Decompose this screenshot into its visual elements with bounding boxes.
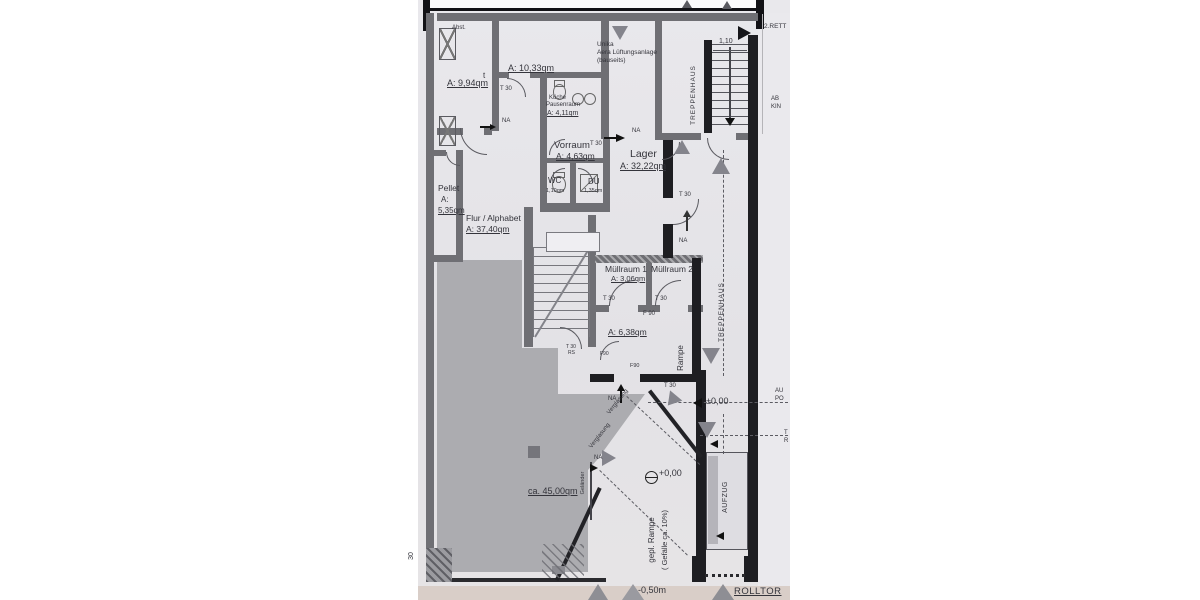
room-label-muellraum1: Müllraum 1 (605, 265, 647, 274)
room-label-vorraum: Vorraum (554, 141, 590, 151)
wall-vestibule-bottom-a (590, 374, 614, 382)
entrance-arrow (588, 584, 608, 600)
edge-text-po: PO (775, 396, 784, 402)
wall-stairflight-west (704, 40, 712, 133)
door-tag-t30: T 30 (655, 296, 667, 302)
radiator (546, 232, 600, 252)
door-tag-na: NA (594, 455, 602, 461)
wall-segment (595, 305, 609, 312)
area-label-flur: A: 37,40qm (466, 225, 509, 234)
area-label-pellet: 5,35qm (438, 207, 465, 215)
area-label-463: A: 4,63qm (556, 152, 595, 161)
entrance-arrow (712, 584, 734, 600)
room-label-du: DU (588, 178, 600, 186)
wall-vestibule-bottom-b (640, 374, 702, 382)
rolltor-track (705, 574, 745, 577)
door-tag-t30: T 30 (679, 192, 691, 198)
rolltor-post-right (744, 556, 757, 582)
door-tag-na: NA (679, 238, 687, 244)
room-label-lager: Lager (630, 149, 657, 160)
treppenhaus-label-top: TREPPENHAUS (689, 45, 699, 145)
floorplan-scan: Abst. t A: 9,94qm A: 10,33qm Küche Pause… (0, 0, 1200, 600)
gelaender-label: Geländer (580, 458, 588, 508)
room-label-wc: WC (548, 177, 561, 185)
level-marker-circle (645, 471, 658, 484)
wall-stair-west (524, 207, 533, 347)
room-label-kueche: Küche (549, 95, 566, 101)
door-tag-t30: T 30 (664, 383, 676, 389)
note-unika-1: Unika (597, 42, 614, 49)
north-tick (722, 1, 732, 9)
staircase-top-centerline (729, 47, 731, 121)
level-marker-flag (693, 398, 702, 408)
wall-pellet-bottom (434, 255, 463, 262)
window-shaft-symbol (439, 28, 456, 60)
na-arrow-stem (480, 126, 490, 128)
escape-arrow (712, 158, 730, 174)
wall-muellraum-top-hatched (595, 255, 703, 263)
edge-text-t: T (784, 430, 788, 436)
wall-pellet-right (456, 150, 463, 258)
escape-arrow (674, 140, 690, 154)
na-arrow-head (490, 124, 496, 130)
door-tag-f90: F 90 (643, 311, 655, 317)
gefaelle-label: ( Gefälle ca. 10%) (660, 490, 670, 590)
na-arrow-head (590, 464, 598, 472)
na-arrow-stem (686, 217, 688, 231)
wall-corridor-west (692, 258, 701, 382)
note-unika-3: (bauseits) (597, 58, 626, 65)
door-tag-na: NA (502, 118, 510, 124)
door-tag-t30: T 30 (500, 86, 512, 92)
door-tag-na: NA (632, 128, 640, 134)
area-label-1033: A: 10,33qm (508, 64, 554, 73)
wall-front-bottom (426, 578, 606, 582)
wall-east-long (748, 35, 758, 582)
edge-text-kin: KIN (771, 104, 781, 110)
room-label-muellraum2: Müllraum 2 (651, 265, 693, 274)
na-arrow-stem (604, 137, 616, 139)
wall-room-divider (492, 21, 499, 131)
dim-label-30: 30 (406, 541, 416, 571)
cistern-icon (554, 80, 565, 87)
na-arrow-head (683, 210, 691, 217)
wall-segment (540, 203, 610, 212)
escape-arrow (612, 26, 628, 40)
door-tag-t30: T 30 (603, 296, 615, 302)
area-label-3222: A: 32,22qm (620, 162, 666, 171)
exit-arrow (738, 26, 751, 40)
area-label-muellraum1: A: 3,06qm (611, 275, 645, 283)
door-tag-f90: F90 (600, 352, 609, 357)
door-tag-t30: T 30 (590, 141, 602, 147)
rampe-label: Rampe (676, 328, 686, 388)
room-label-pellet: Pellet (438, 184, 459, 193)
wall-pellet-top (434, 150, 446, 156)
room-label-pausenraum: Pausenraum (546, 102, 580, 108)
room-label-flur: Flur / Alphabet (466, 214, 521, 223)
column-block (528, 446, 540, 458)
gepl-rampe-label: gepl. Rampe (647, 495, 657, 585)
wall-segment (601, 21, 609, 139)
wall-lager-east-lower (663, 224, 673, 258)
scan-cut-line (762, 14, 763, 134)
level-label-p000: +0,00 (659, 469, 682, 478)
note-unika-2: Aera Lüftungsanlage (597, 50, 657, 57)
wall-left-exterior (426, 13, 434, 582)
area-prefix-pellet: A: (441, 196, 449, 204)
rolltor-label: ROLLTOR (734, 587, 782, 597)
sink-icon (584, 93, 596, 105)
dim-label-110: 1,10 (719, 38, 733, 45)
edge-text-ab: AB (771, 96, 779, 102)
edge-text-r: R (784, 438, 788, 444)
area-label-wc: 1,10qm (546, 189, 564, 195)
area-label-verkauf: ca. 45,00qm (528, 487, 578, 496)
window-shaft-symbol (439, 116, 456, 146)
stair-direction-arrowhead (725, 118, 735, 126)
area-label-du: 1,35qm (584, 189, 602, 195)
treppenhaus-label-mid: TREPPENHAUS (717, 262, 727, 362)
door-tag-rs: RS (568, 351, 575, 356)
na-arrow-head (616, 134, 625, 142)
elevator-door-marker (710, 440, 718, 448)
door-tag-f90: F90 (630, 364, 639, 370)
hatched-corner-block (426, 548, 452, 582)
upper-drawing-border (424, 8, 764, 11)
rolltor-post-left (692, 556, 705, 582)
escape-arrow (602, 450, 616, 466)
elevator-counterweight (708, 456, 718, 544)
area-label-411: A: 4,11qm (547, 110, 578, 117)
aufzug-label: AUFZUG (720, 457, 730, 537)
dim-line (713, 50, 747, 51)
upper-drawing-band (424, 0, 758, 8)
wall-vorraum-right (603, 139, 610, 207)
wall-stairwell-left (655, 13, 662, 140)
level-label-pm000: ±0,00 (706, 397, 728, 406)
north-tick (682, 0, 692, 8)
wall-wc-du-divider (570, 160, 576, 205)
edge-text-au: AU (775, 388, 783, 394)
area-label-994: A: 9,94qm (447, 79, 488, 88)
abstell-label: Abst. (452, 25, 466, 31)
wall-top-exterior (437, 13, 758, 21)
area-label-638: A: 6,38qm (608, 328, 647, 337)
ramp-hatch-marks (542, 544, 584, 578)
escape-arrow (698, 422, 716, 438)
edge-text-rettungsweg: 2.RETT (764, 24, 786, 31)
escape-route-line (723, 414, 724, 454)
